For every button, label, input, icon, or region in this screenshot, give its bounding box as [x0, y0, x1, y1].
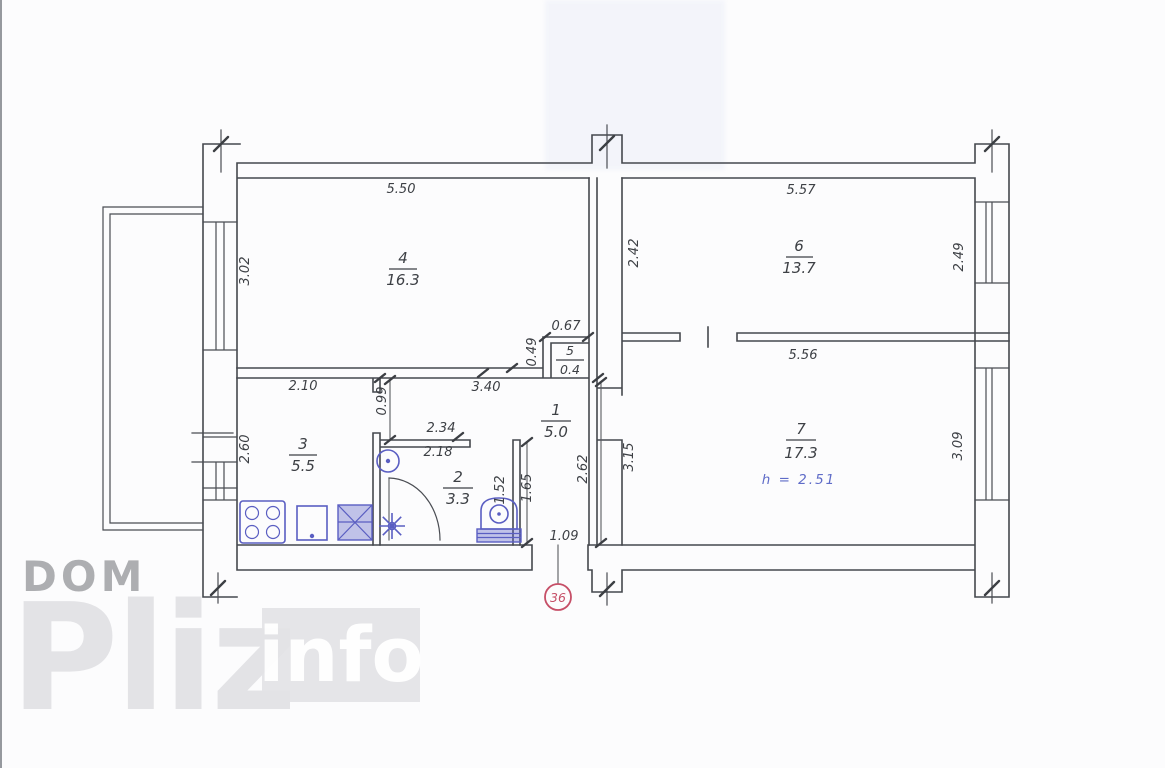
kitchen-cabinet-icon	[297, 506, 327, 540]
room-1-number: 1	[551, 401, 561, 419]
room-7-number: 7	[796, 420, 806, 438]
room-4-number: 4	[398, 249, 408, 267]
room-6-area: 13.7	[782, 259, 816, 277]
balcony	[103, 207, 203, 530]
window-room4-icon	[203, 222, 237, 350]
dim-room6-right: 2.49	[952, 243, 967, 272]
dim-room5-width: 0.67	[552, 319, 582, 334]
room-7-height-note: h = 2.51	[762, 472, 837, 488]
room-3-area: 5.5	[291, 457, 315, 475]
dim-room3-depth: 2.60	[238, 435, 253, 464]
dim-bath-inner-width: 2.18	[424, 445, 453, 460]
room-7-area: 17.3	[784, 444, 817, 462]
dim-room3-width: 2.10	[289, 379, 318, 394]
dim-room6-width: 5.57	[787, 183, 817, 198]
interior-walls	[237, 178, 1009, 545]
dim-room6-left: 2.42	[627, 239, 642, 268]
room-2-area: 3.3	[446, 490, 470, 508]
room-2-number: 2	[453, 468, 463, 486]
stove-icon	[240, 501, 285, 543]
window-room7-icon	[975, 368, 1009, 500]
room-4-label: 4 16.3	[386, 249, 419, 289]
room-5-label: 5 0.4	[556, 343, 584, 377]
dim-room4-width: 5.50	[387, 182, 416, 197]
room-4-area: 16.3	[386, 271, 419, 289]
axis-tick-marks	[211, 125, 999, 605]
room-1-label: 1 5.0	[541, 401, 571, 441]
room-3-number: 3	[298, 435, 308, 453]
dimension-labels: 5.50 3.02 5.57 2.42 2.49 0.67 0.49 5.56 …	[238, 182, 967, 544]
dim-bath-inner-depth: 1.52	[493, 476, 508, 505]
entrance-marker: 36	[545, 584, 571, 610]
shower-mixer-icon	[379, 513, 405, 539]
dim-room7-width: 5.56	[789, 348, 818, 363]
room-3-label: 3 5.5	[289, 435, 317, 475]
entrance-marker-number: 36	[550, 590, 566, 605]
room-5-area: 0.4	[560, 362, 580, 377]
dim-room4-depth: 3.02	[238, 257, 253, 286]
room-1-area: 5.0	[544, 423, 568, 441]
room-6-label: 6 13.7	[782, 237, 816, 277]
dim-hall-width: 3.40	[472, 380, 501, 395]
room-6-number: 6	[794, 237, 804, 255]
dim-bath-outer-width: 2.34	[427, 421, 456, 436]
dim-room7-right: 3.09	[951, 432, 966, 461]
dim-bath-outer-depth: 1.65	[520, 474, 535, 503]
window-room6-icon	[975, 202, 1009, 283]
room-7-label: 7 17.3 h = 2.51	[762, 420, 837, 488]
dim-hall-depth: 2.62	[576, 455, 591, 484]
scanned-floor-plan-page: DOM Pliz info	[0, 0, 1165, 768]
dim-room7-left: 3.15	[622, 443, 637, 472]
floor-plan-drawing: 4 16.3 6 13.7 7 17.3 h = 2.51 3 5.5 2 3.…	[0, 0, 1165, 768]
outer-walls	[203, 135, 1009, 597]
room-2-label: 2 3.3	[443, 468, 473, 508]
dim-hall-wall-seg: 0.99	[375, 387, 390, 416]
balcony-door-window-kitchen-icon	[192, 433, 237, 500]
kitchen-sink-icon	[338, 505, 372, 540]
dim-entry-width: 1.09	[550, 529, 579, 544]
room-5-number: 5	[566, 343, 574, 358]
dim-room5-depth: 0.49	[525, 338, 540, 367]
